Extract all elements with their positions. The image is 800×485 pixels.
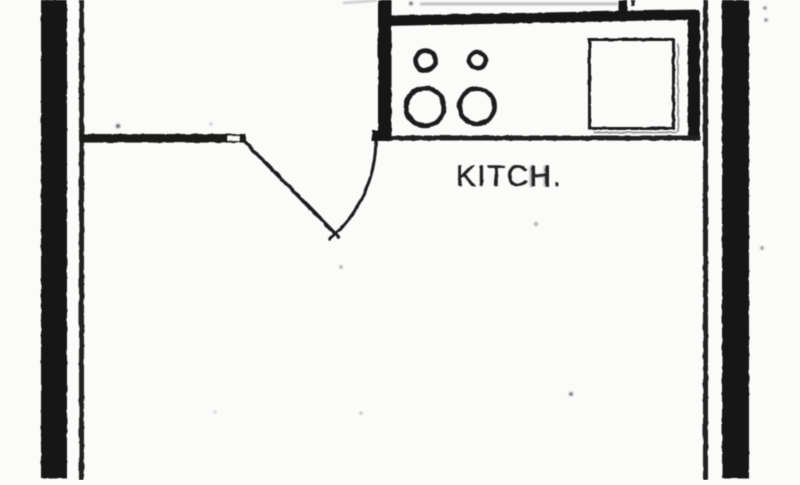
svg-text:H: H	[528, 161, 550, 194]
